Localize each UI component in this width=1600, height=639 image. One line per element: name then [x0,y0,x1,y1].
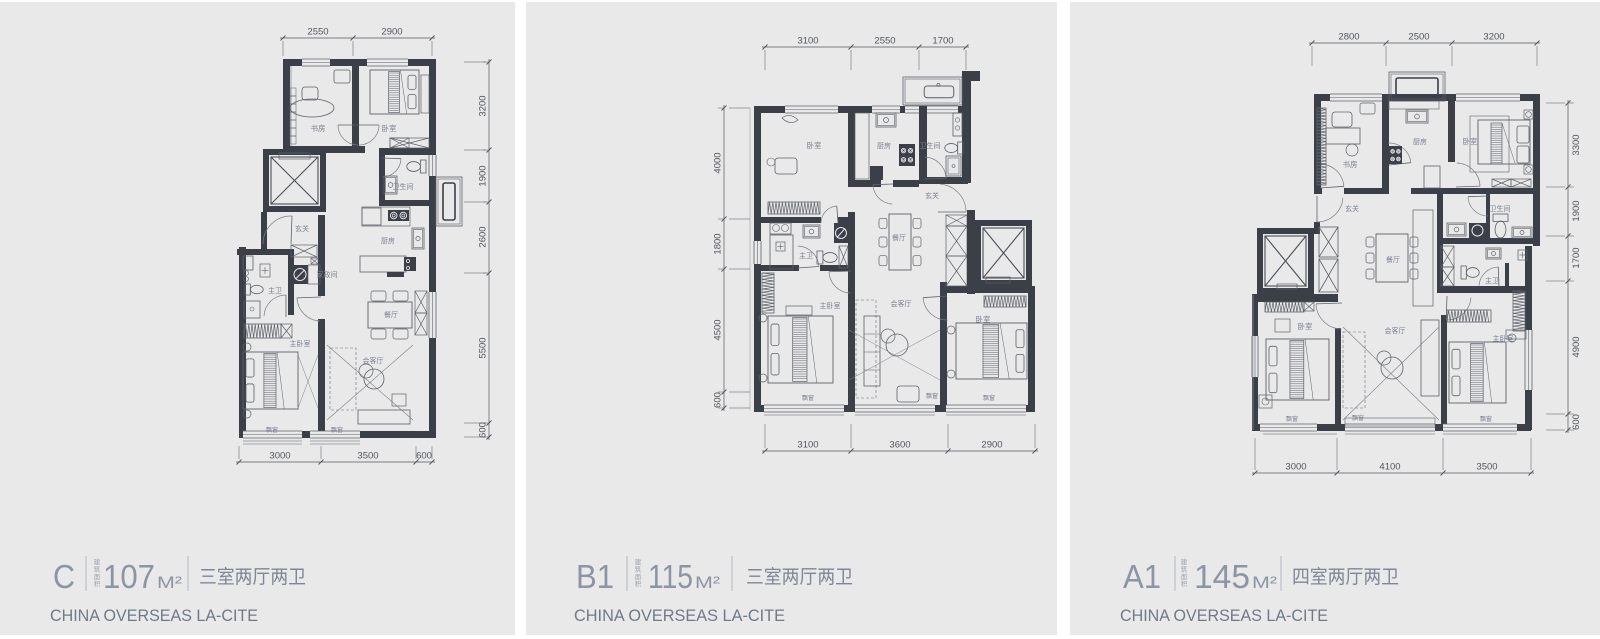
svg-text:3300: 3300 [1571,134,1582,155]
svg-text:厨房: 厨房 [1413,137,1427,146]
svg-text:A1: A1 [1123,558,1161,595]
svg-text:600: 600 [478,422,489,438]
svg-text:卧室: 卧室 [807,140,822,150]
svg-text:CHINA OVERSEAS LA-CITE: CHINA OVERSEAS LA-CITE [574,606,785,625]
svg-text:飘窗: 飘窗 [1352,414,1364,422]
svg-text:115: 115 [648,558,693,595]
svg-text:卫生间: 卫生间 [393,182,414,191]
svg-text:玄关: 玄关 [925,191,939,200]
svg-text:玄关: 玄关 [295,224,309,233]
svg-text:4100: 4100 [1379,462,1400,473]
svg-text:3200: 3200 [1483,32,1504,43]
svg-text:飘窗: 飘窗 [1480,415,1492,423]
svg-text:餐厅: 餐厅 [892,233,906,242]
svg-text:4900: 4900 [1571,336,1582,357]
svg-text:B1: B1 [576,558,614,595]
svg-text:筑: 筑 [635,564,642,573]
svg-text:600: 600 [713,392,724,408]
svg-text:3500: 3500 [357,451,378,462]
svg-text:会客厅: 会客厅 [891,299,912,308]
svg-text:建: 建 [635,557,642,566]
svg-text:2900: 2900 [381,27,402,38]
svg-text:飘窗: 飘窗 [266,426,278,434]
svg-text:1900: 1900 [1571,200,1582,221]
svg-text:1900: 1900 [478,165,489,186]
svg-text:2550: 2550 [874,36,895,47]
svg-text:会客厅: 会客厅 [1385,326,1406,335]
svg-text:2500: 2500 [1408,32,1429,43]
svg-text:3500: 3500 [1476,462,1497,473]
svg-text:1700: 1700 [1571,247,1582,268]
svg-text:C: C [53,558,75,595]
svg-text:四室两厅两卫: 四室两厅两卫 [1292,566,1399,588]
svg-text:主卫: 主卫 [799,251,813,260]
svg-text:3100: 3100 [797,36,818,47]
svg-text:玄关: 玄关 [1345,204,1359,213]
svg-text:2900: 2900 [981,440,1002,451]
svg-text:3600: 3600 [889,440,910,451]
svg-text:厨房: 厨房 [877,141,891,150]
svg-text:1800: 1800 [713,233,724,254]
svg-text:飘窗: 飘窗 [983,394,995,402]
svg-text:飘窗: 飘窗 [1286,415,1298,423]
svg-text:飘窗: 飘窗 [926,392,938,400]
svg-text:主卧室: 主卧室 [290,339,311,348]
svg-text:2550: 2550 [307,27,328,38]
svg-text:卧室: 卧室 [976,314,991,324]
svg-text:飘窗: 飘窗 [331,426,343,434]
svg-text:主卧室: 主卧室 [820,301,841,310]
svg-text:3200: 3200 [478,95,489,116]
svg-text:600: 600 [1571,414,1582,430]
svg-text:餐厅: 餐厅 [384,310,398,319]
svg-text:卫生间: 卫生间 [920,141,941,150]
svg-text:3000: 3000 [269,451,290,462]
svg-text:积: 积 [635,579,642,588]
svg-text:会客厅: 会客厅 [363,356,384,365]
svg-text:家政间: 家政间 [317,270,338,279]
svg-text:主卧室: 主卧室 [1493,334,1514,343]
svg-text:CHINA OVERSEAS LA-CITE: CHINA OVERSEAS LA-CITE [50,606,258,625]
svg-text:4000: 4000 [713,152,724,173]
svg-text:1700: 1700 [932,36,953,47]
svg-text:卧室: 卧室 [1463,136,1479,146]
svg-text:M²: M² [1252,573,1277,592]
svg-text:主卫: 主卫 [1485,276,1499,285]
svg-text:3100: 3100 [797,440,818,451]
svg-text:筑: 筑 [1181,564,1188,573]
svg-text:积: 积 [1181,579,1188,588]
svg-text:4500: 4500 [713,319,724,340]
svg-text:107: 107 [103,558,155,595]
svg-text:三室两厅两卫: 三室两厅两卫 [199,566,306,588]
svg-text:三室两厅两卫: 三室两厅两卫 [746,566,853,588]
svg-text:厨房: 厨房 [381,236,395,245]
svg-text:M²: M² [695,573,720,592]
svg-text:2600: 2600 [478,226,489,247]
svg-text:145: 145 [1194,558,1250,595]
svg-text:卧室: 卧室 [1298,321,1314,331]
svg-text:建: 建 [1181,557,1188,566]
svg-text:筑: 筑 [94,564,101,573]
svg-text:M²: M² [157,573,182,592]
svg-text:面: 面 [635,573,642,581]
svg-text:面: 面 [1181,573,1188,581]
svg-text:积: 积 [94,579,101,588]
svg-text:卧室: 卧室 [382,123,397,133]
svg-text:600: 600 [416,451,432,462]
svg-text:3000: 3000 [1285,462,1306,473]
svg-text:卫生间: 卫生间 [1490,204,1511,213]
svg-text:2800: 2800 [1338,32,1359,43]
svg-text:CHINA OVERSEAS LA-CITE: CHINA OVERSEAS LA-CITE [1120,606,1328,625]
svg-text:面: 面 [94,573,101,581]
svg-text:主卫: 主卫 [268,286,282,295]
svg-text:飘窗: 飘窗 [802,394,814,402]
svg-text:5500: 5500 [478,337,489,358]
svg-text:餐厅: 餐厅 [1386,255,1400,264]
svg-text:书房: 书房 [311,123,326,133]
svg-text:建: 建 [94,557,101,566]
svg-text:书房: 书房 [1343,159,1358,169]
